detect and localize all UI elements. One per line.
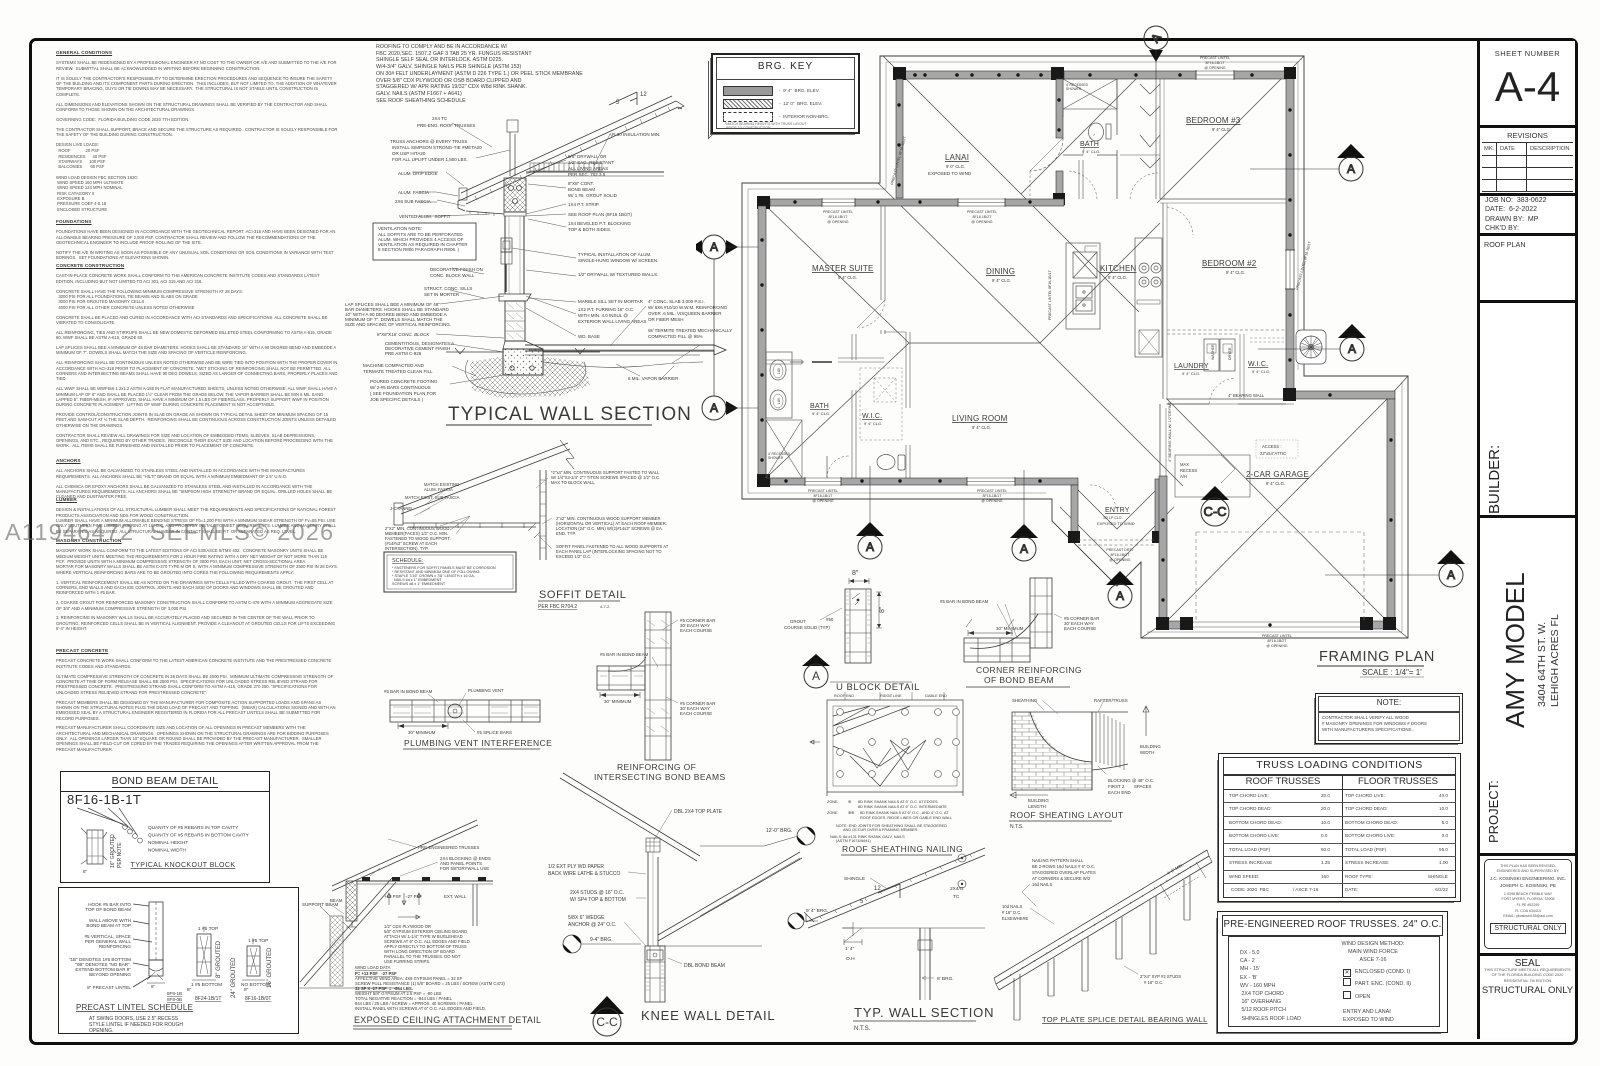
svg-text:MAX TO BLOCK WALL: MAX TO BLOCK WALL — [551, 480, 595, 485]
svg-text:BOND BEAM: BOND BEAM — [568, 187, 595, 192]
svg-text:MAX: MAX — [1180, 462, 1189, 467]
svg-text:PRECAST LINTEL 8F16-1B/1T: PRECAST LINTEL 8F16-1B/1T — [1048, 269, 1052, 320]
svg-text:NAILING PATTERN SHALL: NAILING PATTERN SHALL — [1032, 858, 1084, 863]
svg-text:6 MIL. VAPOR BARRIER: 6 MIL. VAPOR BARRIER — [628, 376, 679, 381]
svg-text:AND OCCUR OVER A FRAMING MEMBE: AND OCCUR OVER A FRAMING MEMBER. — [843, 828, 918, 832]
svg-text:PRECAST LINTEL: PRECAST LINTEL — [977, 489, 1007, 493]
svg-text:OR USP HITA20: OR USP HITA20 — [392, 151, 426, 156]
svg-text:PRECAST DRTL: PRECAST DRTL — [1106, 548, 1133, 552]
svg-text:WASHER: WASHER — [1211, 344, 1215, 360]
svg-text:SCHEDULE:: SCHEDULE: — [392, 558, 424, 564]
svg-text:⊕⊕: ⊕⊕ — [848, 811, 854, 815]
svg-text:A: A — [1148, 31, 1164, 46]
svg-text:EACH COURSE: EACH COURSE — [1064, 626, 1096, 631]
svg-text:RAFTER/TRUSS: RAFTER/TRUSS — [1094, 698, 1128, 703]
svg-text:#50: #50 — [826, 617, 834, 622]
svg-text:9' 4" CLG.: 9' 4" CLG. — [1108, 275, 1127, 280]
svg-text:@ OPENING: @ OPENING — [981, 499, 1002, 503]
svg-text:1X4 BEVELED P.T. BLOCKING: 1X4 BEVELED P.T. BLOCKING — [568, 221, 631, 226]
svg-text:USE FURRING STRIPS.: USE FURRING STRIPS. — [384, 959, 430, 964]
svg-text:SIZE AND SPACING OF VERTICAL R: SIZE AND SPACING OF VERTICAL REINFORCING… — [345, 322, 451, 327]
svg-text:DINING: DINING — [986, 267, 1015, 276]
svg-text:4" CONC. SLAB 3,000 P.S.I.: 4" CONC. SLAB 3,000 P.S.I. — [648, 299, 705, 304]
svg-text:9' 0" CLG.: 9' 0" CLG. — [946, 164, 965, 169]
svg-text:STAGGERED OVERLAP PLATES: STAGGERED OVERLAP PLATES — [1032, 870, 1096, 875]
svg-text:+13 PSF: +13 PSF — [384, 894, 402, 899]
svg-text:2X6 SUB FASCIA: 2X6 SUB FASCIA — [395, 199, 431, 204]
svg-text:PLUMBING VENT: PLUMBING VENT — [468, 688, 504, 693]
svg-text:WIND LOAD DATA: WIND LOAD DATA — [355, 965, 391, 970]
svg-text:PRECAST LINTEL: PRECAST LINTEL — [808, 489, 838, 493]
svg-text:8 SECTION R806 PARAGRAPH R806.: 8 SECTION R806 PARAGRAPH R806. ) — [378, 247, 459, 252]
svg-text:VENTED ALUM. SOFFIT: VENTED ALUM. SOFFIT — [399, 214, 451, 219]
svg-text:22"x54"ATTIC: 22"x54"ATTIC — [1260, 451, 1286, 456]
svg-text:9' 4" CLG.: 9' 4" CLG. — [864, 421, 882, 426]
svg-text:EXPOSED CEILING ATTACHMENT DET: EXPOSED CEILING ATTACHMENT DETAIL — [354, 1015, 541, 1025]
svg-text:END. TYP.: END. TYP. — [556, 531, 576, 536]
svg-text:BATH: BATH — [810, 403, 829, 410]
svg-text:A/H: A/H — [1180, 474, 1187, 479]
svg-text:ENTRY: ENTRY — [1105, 507, 1130, 514]
svg-text:N.T.S.: N.T.S. — [854, 1026, 871, 1032]
svg-text:#5 BAR IN BOND BEAM: #5 BAR IN BOND BEAM — [600, 652, 649, 657]
svg-text:BEDROOM #3: BEDROOM #3 — [1186, 116, 1241, 125]
svg-text:PER SEC. 702.3.5: PER SEC. 702.3.5 — [568, 172, 606, 177]
svg-text:9-4" BRG.: 9-4" BRG. — [590, 937, 613, 943]
svg-text:KITCHEN: KITCHEN — [1100, 264, 1137, 273]
svg-text:W/ SP4 TOP & BOTTOM: W/ SP4 TOP & BOTTOM — [570, 897, 626, 903]
svg-text:PRECAST LINTEL: PRECAST LINTEL — [823, 210, 853, 214]
svg-text:12'-0" BRG.: 12'-0" BRG. — [766, 828, 792, 834]
svg-text:SPACES: SPACES — [1134, 784, 1152, 789]
svg-text:( SEE FOUNDATION PLAN FOR: ( SEE FOUNDATION PLAN FOR — [370, 391, 437, 396]
svg-text:AT CORNERS & SECURE W/2: AT CORNERS & SECURE W/2 — [1032, 876, 1091, 881]
svg-text:@ OPENING: @ OPENING — [827, 220, 848, 224]
svg-text:PRE-ENG. ROOF TRUSSES: PRE-ENG. ROOF TRUSSES — [417, 123, 475, 128]
svg-text:LANAI: LANAI — [945, 153, 969, 162]
svg-text:JOB SPECIFIC DETAILS ): JOB SPECIFIC DETAILS ) — [370, 397, 424, 402]
svg-text:8"X8" CONT.: 8"X8" CONT. — [568, 181, 594, 186]
svg-text:16d NAILS: 16d NAILS — [1032, 882, 1052, 887]
svg-text:PRECAST LINTEL: PRECAST LINTEL — [967, 210, 997, 214]
svg-text:2X4 STUDS @ 16" O.C.: 2X4 STUDS @ 16" O.C. — [570, 890, 624, 896]
svg-text:@ OPENING: @ OPENING — [971, 220, 992, 224]
svg-text:8F16-1B/1T: 8F16-1B/1T — [829, 215, 849, 219]
svg-text:C-C: C-C — [596, 1015, 618, 1029]
svg-text:8F16-1B/2T: 8F16-1B/2T — [973, 215, 993, 219]
svg-text:4-7-2.: 4-7-2. — [600, 604, 610, 609]
svg-text:TERMATE TREATED CLEAN FILL: TERMATE TREATED CLEAN FILL — [363, 369, 433, 374]
svg-text:EACH COURSE: EACH COURSE — [680, 628, 712, 633]
svg-text:PRECAST LINTEL: PRECAST LINTEL — [1200, 56, 1230, 60]
svg-text:SOFFIT DETAIL: SOFFIT DETAIL — [539, 589, 626, 601]
svg-text:SHEATHING: SHEATHING — [1012, 698, 1038, 703]
svg-text:2-CAR GARAGE: 2-CAR GARAGE — [1246, 470, 1309, 479]
svg-text:FOR ALL UPLIFT UNDER 1,800 LBS: FOR ALL UPLIFT UNDER 1,800 LBS. — [392, 157, 468, 162]
svg-text:9' 4" CLG.: 9' 4" CLG. — [992, 278, 1011, 283]
svg-text:PLUMBING VENT INTERFERENCE: PLUMBING VENT INTERFERENCE — [404, 738, 552, 748]
svg-text:1X4 P.T. STRIP.: 1X4 P.T. STRIP. — [568, 202, 600, 207]
svg-text:LAV: LAV — [777, 397, 781, 404]
svg-text:12: 12 — [640, 92, 647, 98]
svg-text:R-30 INSULATION MIN.: R-30 INSULATION MIN. — [612, 132, 660, 137]
svg-text:INSTALL SIMPSON STRONG-TIE #ME: INSTALL SIMPSON STRONG-TIE #META20 — [392, 145, 482, 150]
svg-text:ROOF SHEATING LAYOUT: ROOF SHEATING LAYOUT — [1010, 810, 1123, 820]
svg-text:8F16-1B/2T: 8F16-1B/2T — [1268, 639, 1288, 643]
svg-text:1X2 P.T. FURRING 16" O.C.: 1X2 P.T. FURRING 16" O.C. — [578, 307, 635, 312]
svg-text:@ OPENING: @ OPENING — [1204, 66, 1225, 70]
svg-text:9' 4" CLG.: 9' 4" CLG. — [972, 425, 991, 430]
svg-text:@ OPENING: @ OPENING — [1266, 644, 1287, 648]
svg-text:OVER .6 MIL. VISQUEEN BARRIER: OVER .6 MIL. VISQUEEN BARRIER — [648, 311, 722, 316]
svg-text:SCALE : 1/4"= 1': SCALE : 1/4"= 1' — [1362, 668, 1422, 677]
svg-text:INTERSECTING BOND BEAMS: INTERSECTING BOND BEAMS — [594, 772, 726, 782]
svg-text:A: A — [1347, 162, 1355, 176]
svg-text:1/2 LP CLG.: 1/2 LP CLG. — [1103, 516, 1123, 520]
svg-text:TYPICAL INSTALLATION OF ALUM.: TYPICAL INSTALLATION OF ALUM. — [578, 252, 651, 257]
svg-text:9' 4" CLG.: 9' 4" CLG. — [812, 411, 830, 416]
svg-text:COURSE SOLID (TYP): COURSE SOLID (TYP) — [784, 625, 830, 630]
svg-text:W.I.C.: W.I.C. — [862, 413, 882, 420]
svg-text:A: A — [710, 240, 718, 254]
svg-text:9' 4" BRG.: 9' 4" BRG. — [806, 908, 828, 914]
svg-text:5: 5 — [860, 899, 864, 905]
svg-text:MACHINE COMPACTED AND: MACHINE COMPACTED AND — [363, 363, 425, 368]
svg-text:#5 SPLICE BARS: #5 SPLICE BARS — [477, 730, 512, 735]
svg-text:8F16-1B/1T: 8F16-1B/1T — [983, 494, 1003, 498]
svg-text:2"X4" SYP #2 STUDS: 2"X4" SYP #2 STUDS — [1140, 974, 1181, 979]
svg-text:8F16-1B/1T: 8F16-1B/1T — [1206, 61, 1226, 65]
svg-text:9' 4" CLG.: 9' 4" CLG. — [1226, 270, 1245, 275]
svg-text:BEDROOM #2: BEDROOM #2 — [1202, 259, 1257, 268]
svg-text:8F16-1B/2T: 8F16-1B/2T — [1111, 553, 1131, 557]
svg-text:O.H: O.H — [846, 956, 855, 962]
svg-text:COMPACTED FILL @ 95%: COMPACTED FILL @ 95% — [648, 334, 703, 339]
svg-text:INSTALL PANEL WITH SCREWS AT 6: INSTALL PANEL WITH SCREWS AT 6" O.C. ALL… — [355, 1006, 486, 1011]
svg-text:TOP PLATE SPLICE DETAIL BEARI: TOP PLATE SPLICE DETAIL BEARING WALL — [1042, 1015, 1208, 1024]
svg-text:ROOF SHEATHING NAILING: ROOF SHEATHING NAILING — [842, 844, 963, 854]
svg-text:SHOWER: SHOWER — [768, 456, 784, 460]
svg-text:A: A — [812, 669, 820, 683]
svg-text:MARBLE SILL SET IN MORTAR: MARBLE SILL SET IN MORTAR — [578, 299, 644, 304]
svg-text:8"X8"X16' CONC. BLOCK: 8"X8"X16' CONC. BLOCK — [377, 332, 430, 337]
svg-text:SCREWS #8 x 1" EMBEDMENT: SCREWS #8 x 1" EMBEDMENT — [392, 582, 446, 586]
svg-text:WIDTH: WIDTH — [1140, 750, 1154, 755]
svg-text:ELSEWHERE: ELSEWHERE — [1002, 916, 1029, 921]
svg-text:EACH END: EACH END — [1108, 790, 1131, 795]
svg-text:SHINGLE: SHINGLE — [844, 876, 865, 882]
svg-text:4" BEARING WALL: 4" BEARING WALL — [1228, 393, 1265, 398]
svg-text:CONC. BLOCK WALL: CONC. BLOCK WALL — [430, 273, 475, 278]
svg-text:OF BOND BEAM: OF BOND BEAM — [984, 675, 1054, 685]
svg-text:LAV: LAV — [777, 367, 781, 374]
svg-text:SEE ROOF PLAN (8F16 1B/2T): SEE ROOF PLAN (8F16 1B/2T) — [568, 212, 633, 217]
svg-text:ALUM. FASCIA: ALUM. FASCIA — [424, 487, 453, 492]
svg-text:MASTER SUITE: MASTER SUITE — [812, 264, 874, 273]
svg-text:PRE-ENGINEERED TRUSSES: PRE-ENGINEERED TRUSSES — [418, 845, 479, 850]
svg-text:W.I.C.: W.I.C. — [1248, 361, 1268, 368]
svg-text:EXPOSED TO WIND: EXPOSED TO WIND — [928, 171, 972, 176]
svg-text:W/ 1 #5 GROUT SOLID: W/ 1 #5 GROUT SOLID — [568, 193, 618, 198]
svg-text:DECORATIVE FINISH ON: DECORATIVE FINISH ON — [430, 267, 483, 272]
svg-text:5: 5 — [616, 100, 620, 106]
svg-text:A: A — [710, 401, 718, 415]
svg-text:@ OPENING: @ OPENING — [812, 499, 833, 503]
svg-text:U BLOCK DETAIL: U BLOCK DETAIL — [836, 682, 920, 693]
svg-text:OR FIBER MESH: OR FIBER MESH — [648, 317, 684, 322]
svg-text:DRYER: DRYER — [1228, 347, 1232, 360]
svg-text:A: A — [866, 540, 874, 554]
svg-text:9' 4" CLG.: 9' 4" CLG. — [1082, 149, 1100, 154]
svg-text:10d NAILS: 10d NAILS — [1002, 904, 1022, 909]
svg-text:-27 PSF: -27 PSF — [406, 894, 422, 899]
svg-text:4" BEARING WALL W/ 1/2"DRYWE: 4" BEARING WALL W/ 1/2"DRYWE — [1168, 401, 1172, 462]
svg-text:12: 12 — [874, 886, 881, 892]
svg-text:WD. BASE: WD. BASE — [578, 334, 600, 339]
svg-text:A: A — [1116, 589, 1124, 603]
svg-text:@ OPENING: @ OPENING — [1109, 558, 1130, 562]
svg-text:ROOF EDGES, RIDGE LINES OR GAB: ROOF EDGES, RIDGE LINES OR GABLE END WAL… — [860, 816, 952, 820]
svg-text:TYPICAL WALL SECTION: TYPICAL WALL SECTION — [448, 404, 692, 425]
svg-text:EACH COURSE: EACH COURSE — [680, 711, 712, 716]
svg-text:VENTILATION NOTE:: VENTILATION NOTE: — [378, 226, 422, 231]
svg-text:8D RINK SHANK NAILS AT 6" O.C.: 8D RINK SHANK NAILS AT 6" O.C. INTERMEDI… — [858, 805, 947, 809]
svg-text:A: A — [1020, 542, 1028, 556]
svg-text:ZONE: ZONE — [827, 811, 838, 815]
svg-text:8D RINK SHANK NAILS AT 6" O.C.: 8D RINK SHANK NAILS AT 6" O.C., AND 4" O… — [860, 811, 949, 815]
svg-text:A: A — [1447, 568, 1455, 582]
svg-text:A: A — [1348, 342, 1356, 356]
svg-text:EXCEED 1/2" O.C.: EXCEED 1/2" O.C. — [556, 554, 591, 559]
svg-text:9' 4" CLG.: 9' 4" CLG. — [1252, 369, 1270, 374]
svg-text:ACCESS :: ACCESS : — [1262, 444, 1282, 449]
svg-text:8F16-1B/1T: 8F16-1B/1T — [814, 494, 834, 498]
svg-text:GROUT: GROUT — [790, 619, 806, 624]
svg-text:30" MINIMUM: 30" MINIMUM — [604, 699, 632, 704]
svg-text:1' 4": 1' 4" — [845, 946, 855, 952]
svg-text:(ASTM F1674/A641): (ASTM F1674/A641) — [836, 839, 872, 843]
svg-text:BLOCKING @ 48" O.C.: BLOCKING @ 48" O.C. — [1108, 778, 1154, 783]
svg-text:RIDGE LINE: RIDGE LINE — [880, 694, 902, 698]
svg-text:BATH: BATH — [1080, 141, 1099, 148]
svg-text:BUILDING: BUILDING — [1140, 744, 1161, 749]
svg-text:TYP. WALL SECTION: TYP. WALL SECTION — [854, 1005, 994, 1020]
svg-text:PRE ASTM C-926: PRE ASTM C-926 — [385, 351, 422, 356]
svg-text:#5 BAR IN BOND BEAM: #5 BAR IN BOND BEAM — [940, 599, 989, 604]
svg-text:ANCHOR @ 24" O.C.: ANCHOR @ 24" O.C. — [568, 922, 617, 928]
svg-text:RECESS: RECESS — [1180, 468, 1197, 473]
svg-text:BACK WIRE LATHE & STUCCO: BACK WIRE LATHE & STUCCO — [548, 871, 621, 877]
svg-text:1/2" SAG. RESISTANT: 1/2" SAG. RESISTANT — [568, 160, 614, 165]
svg-text:1/2" DRYWALL W/ TEXTURED WALLS: 1/2" DRYWALL W/ TEXTURED WALLS. — [578, 272, 658, 277]
svg-text:DBL 2X4 TOP PLATE: DBL 2X4 TOP PLATE — [674, 809, 723, 815]
svg-text:DBL BOND BEAM: DBL BOND BEAM — [684, 963, 725, 969]
svg-text:9' 4" CLG.: 9' 4" CLG. — [1266, 481, 1285, 486]
svg-text:C-C: C-C — [1203, 504, 1226, 519]
svg-text:9' 4" CLG.: 9' 4" CLG. — [838, 275, 857, 280]
svg-text:5/8X 6" WEDGE: 5/8X 6" WEDGE — [568, 915, 605, 921]
svg-text:8": 8" — [852, 570, 859, 577]
svg-text:LAUNDRY: LAUNDRY — [1174, 363, 1209, 370]
svg-text:W/ 2-#5 BARS CONTINUOUS: W/ 2-#5 BARS CONTINUOUS — [370, 385, 431, 390]
svg-text:LENGTH: LENGTH — [1028, 804, 1046, 809]
svg-text:PER FBC R704.2: PER FBC R704.2 — [538, 604, 577, 610]
svg-text:1/2 EXT PLY WD PAPER: 1/2 EXT PLY WD PAPER — [548, 864, 604, 870]
svg-text:WITH MIN. 4.0 INSUL @: WITH MIN. 4.0 INSUL @ — [578, 313, 628, 318]
svg-text:8' BRG.: 8' BRG. — [937, 976, 954, 982]
svg-text:8": 8" — [879, 606, 886, 613]
svg-text:J-CHANNEL: J-CHANNEL — [390, 506, 414, 511]
svg-text:5/8" DRYWALL OR: 5/8" DRYWALL OR — [568, 154, 607, 159]
svg-text:STRUCT. CONC. SILLS: STRUCT. CONC. SILLS — [424, 286, 472, 291]
svg-text:TOP & BOTH SIDES.: TOP & BOTH SIDES. — [568, 227, 611, 232]
svg-text:ALUM. FASCIA: ALUM. FASCIA — [398, 190, 429, 195]
svg-text:EXT. WALL: EXT. WALL — [444, 894, 467, 899]
svg-text:KNEE WALL DETAIL: KNEE WALL DETAIL — [641, 1008, 775, 1023]
svg-text:LIVING ROOM: LIVING ROOM — [952, 414, 1008, 423]
svg-text:W/ TERMITE TREATED MECHANICALL: W/ TERMITE TREATED MECHANICALLY — [648, 328, 732, 333]
svg-text:⊕: ⊕ — [848, 800, 851, 804]
svg-text:TC: TC — [953, 894, 960, 900]
svg-text:W/ 6X6 #10/10 W.W.M. REINFORCI: W/ 6X6 #10/10 W.W.M. REINFORCING — [648, 305, 728, 310]
svg-text:REINFORCING OF: REINFORCING OF — [617, 762, 696, 772]
svg-text:FOR 5/8"DRYWALL USE: FOR 5/8"DRYWALL USE — [440, 866, 489, 871]
svg-text:SHOWER: SHOWER — [1066, 87, 1082, 91]
svg-text:POURED CONCRETE FOOTING: POURED CONCRETE FOOTING — [370, 379, 438, 384]
svg-text:SINGLE-HUNG WINDOW W/ SCREEN.: SINGLE-HUNG WINDOW W/ SCREEN. — [578, 258, 658, 263]
svg-text:ALL LIVING AREAS: ALL LIVING AREAS — [568, 166, 608, 171]
svg-text:9' 4" CLG.: 9' 4" CLG. — [1182, 371, 1200, 376]
svg-text:FIRST 2: FIRST 2 — [1108, 784, 1125, 789]
svg-text:FRAMING PLAN: FRAMING PLAN — [1319, 649, 1435, 665]
svg-text:# 16" O.C.: # 16" O.C. — [1002, 910, 1021, 915]
svg-text:CORNER REINFORCING: CORNER REINFORCING — [976, 665, 1082, 675]
svg-text:TRUSS ANCHORS @ EVERY TRUSS: TRUSS ANCHORS @ EVERY TRUSS — [390, 139, 467, 144]
svg-text:2X4/G: 2X4/G — [950, 886, 964, 892]
svg-text:ZONE: ZONE — [827, 800, 838, 804]
svg-text:30" MINIMUM: 30" MINIMUM — [408, 730, 436, 735]
svg-text:ROOF END: ROOF END — [834, 694, 854, 698]
svg-text:# 16" O.C.: # 16" O.C. — [1144, 980, 1163, 985]
svg-text:INTERSECTION). TYP.: INTERSECTION). TYP. — [385, 546, 429, 551]
svg-text:BUILDING: BUILDING — [1028, 798, 1049, 803]
svg-text:8D RINK SHANK NAILS AT 6" O.C.: 8D RINK SHANK NAILS AT 6" O.C. AT EDGES. — [858, 800, 939, 804]
svg-text:#5 BAR IN BOND BEAM: #5 BAR IN BOND BEAM — [384, 689, 433, 694]
svg-text:PRECAST LINTEL: PRECAST LINTEL — [1262, 634, 1292, 638]
svg-text:SET IN MORTER: SET IN MORTER — [424, 292, 460, 297]
svg-text:EXPOSED TO WIND: EXPOSED TO WIND — [1097, 521, 1135, 526]
svg-text:N.T.S.: N.T.S. — [1010, 824, 1024, 830]
svg-text:GABLE END: GABLE END — [925, 694, 947, 698]
svg-text:EXTERIOR WALL LIVING AREAS: EXTERIOR WALL LIVING AREAS — [578, 319, 646, 324]
svg-text:9' 4" CLG.: 9' 4" CLG. — [1212, 127, 1231, 132]
svg-text:4'-0" MIN.: 4'-0" MIN. — [1166, 862, 1184, 876]
svg-text:2X4 TC: 2X4 TC — [432, 116, 448, 121]
svg-text:BE 2-ROWS 16d NAILS # 6" O.C.: BE 2-ROWS 16d NAILS # 6" O.C. — [1032, 864, 1095, 869]
